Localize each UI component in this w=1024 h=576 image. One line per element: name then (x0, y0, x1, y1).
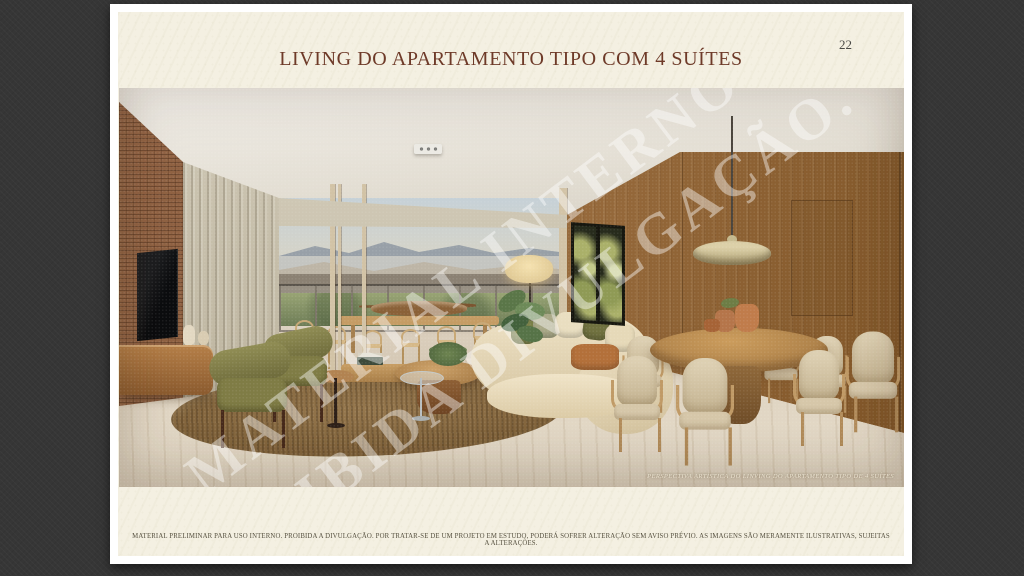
wood-credenza (119, 345, 213, 395)
dining-chair (793, 350, 845, 450)
floor-lamp-shade (505, 255, 553, 283)
ceiling-spotlight (414, 144, 442, 154)
driftwood-centerpiece (371, 301, 467, 316)
page-number: 22 (839, 37, 852, 53)
hero-render-image: PERSPECTIVA ARTÍSTICA DO LINVING DO APAR… (119, 88, 904, 487)
terracotta-pot (735, 304, 759, 332)
wall-corner (682, 152, 683, 348)
disclaimer-text: MATERIAL PRELIMINAR PARA USO INTERNO. PR… (130, 533, 892, 547)
olive-armchair (205, 346, 301, 446)
tv-screen (137, 249, 178, 341)
terracotta-bowl (704, 319, 720, 332)
botanical-artwork (571, 222, 625, 326)
glass-side-table-stem (420, 378, 422, 418)
coffee-table-base (417, 380, 461, 414)
ceramic-vase (198, 331, 209, 345)
glass-side-table (400, 371, 444, 385)
glass-side-table-base (412, 416, 430, 421)
dining-chair (676, 358, 734, 470)
pendant-lamp-shade (693, 241, 771, 265)
potted-fern (429, 342, 467, 366)
pendant-lamp-rod (731, 116, 733, 244)
coffee-table-books (357, 357, 383, 365)
ceramic-vase (183, 325, 195, 345)
slide-title: LIVING DO APARTAMENTO TIPO COM 4 SUÍTES (110, 48, 912, 71)
concealed-door (791, 200, 853, 316)
dining-chair (846, 332, 901, 437)
slide: LIVING DO APARTAMENTO TIPO COM 4 SUÍTES … (110, 4, 912, 564)
dining-chair (611, 356, 663, 456)
image-caption: PERSPECTIVA ARTÍSTICA DO LINVING DO APAR… (647, 473, 894, 480)
